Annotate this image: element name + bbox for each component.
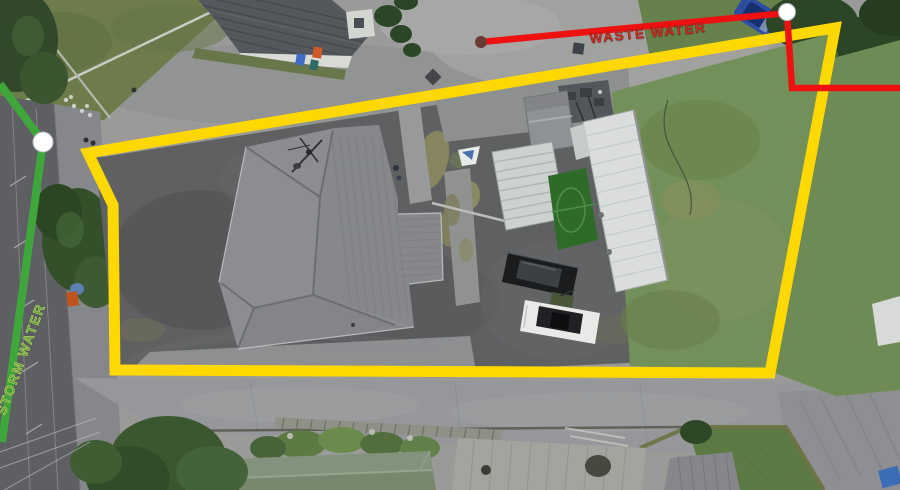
waste-water-junction-marker <box>779 4 796 21</box>
storm-water-junction-marker <box>33 132 53 152</box>
orange-bin <box>66 291 79 306</box>
person-on-path <box>393 165 399 171</box>
aerial-site-photo: WASTE WATER STORM WATER <box>0 0 900 490</box>
manhole-cover <box>572 42 584 54</box>
aerial-photo-canvas <box>0 0 900 490</box>
spa-pool <box>585 455 611 477</box>
waste-water-start-marker <box>475 36 487 48</box>
